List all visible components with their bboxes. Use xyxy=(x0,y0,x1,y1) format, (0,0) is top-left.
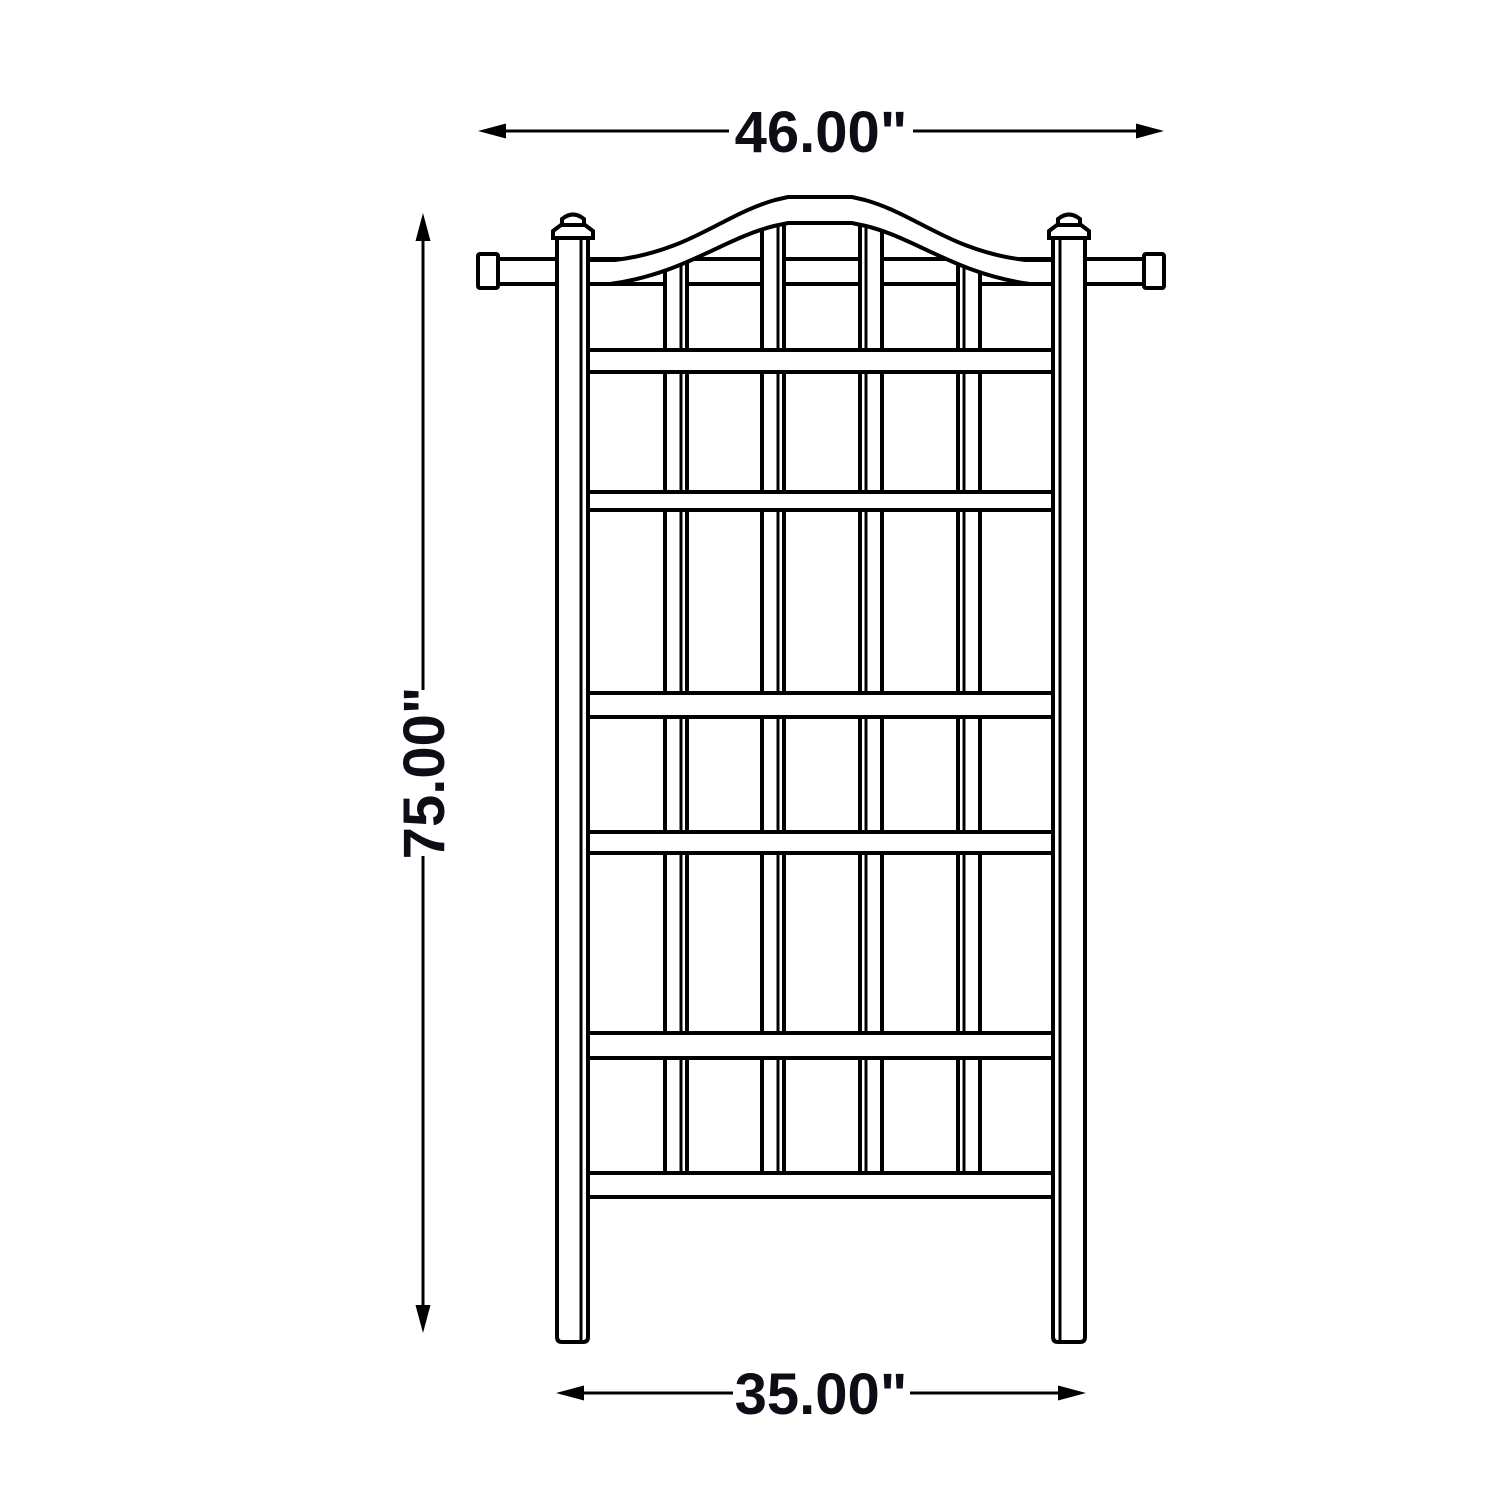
left-post-finial-knob xyxy=(562,215,584,226)
rail-6 xyxy=(565,1173,1077,1197)
dim-top-arrow-right-icon xyxy=(1136,124,1164,139)
dim-top-width-label: 46.00" xyxy=(735,100,908,165)
rail-5 xyxy=(565,1033,1077,1058)
crossbar-left-end-cap xyxy=(478,254,498,288)
dim-height-arrow-top-icon xyxy=(416,213,431,241)
left-post-body xyxy=(557,237,588,1342)
rail-2 xyxy=(565,492,1077,510)
dim-height-arrow-bottom-icon xyxy=(416,1305,431,1333)
right-post-body xyxy=(1053,237,1085,1342)
dim-bottom-arrow-right-icon xyxy=(1058,1386,1086,1401)
trellis-elevation-svg: 46.00" 75.00" 35.00" xyxy=(0,0,1500,1500)
dimension-overall-height: 75.00" xyxy=(392,213,457,1333)
dimension-top-width: 46.00" xyxy=(478,100,1164,165)
dim-bottom-width-label: 35.00" xyxy=(735,1362,908,1427)
trellis-dimension-drawing: 46.00" 75.00" 35.00" xyxy=(0,0,1500,1500)
left-post xyxy=(553,215,593,1343)
dim-top-arrow-left-icon xyxy=(478,124,506,139)
trellis-rails xyxy=(565,350,1077,1197)
right-post xyxy=(1049,215,1089,1343)
right-post-finial-knob xyxy=(1058,215,1080,226)
dimension-bottom-width: 35.00" xyxy=(556,1362,1086,1427)
rail-4 xyxy=(565,832,1077,853)
dim-overall-height-label: 75.00" xyxy=(392,687,457,860)
rail-3 xyxy=(565,693,1077,717)
crossbar-right-end-cap xyxy=(1144,254,1164,288)
dim-bottom-arrow-left-icon xyxy=(556,1386,584,1401)
rail-1 xyxy=(565,350,1077,372)
